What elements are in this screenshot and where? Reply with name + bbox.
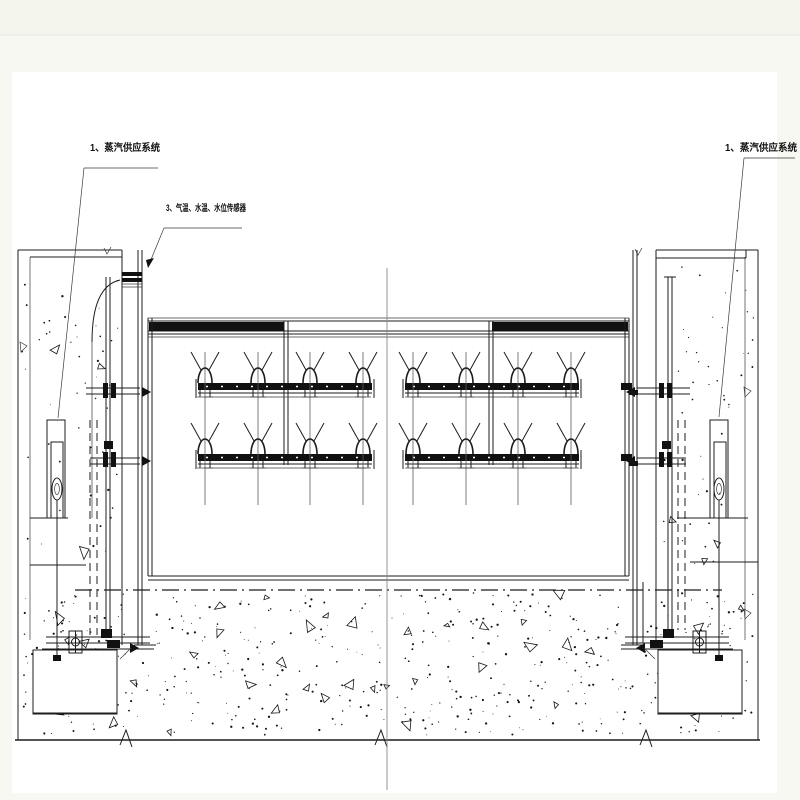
top-beam-right-panel bbox=[492, 322, 628, 331]
left-hoist-pit bbox=[33, 650, 117, 714]
drawing-page: 1、蒸汽供应系统 3、气温、水温、水位传感器 1、蒸汽供应系统 bbox=[0, 0, 800, 800]
label-steam-supply-left: 1、蒸汽供应系统 bbox=[90, 141, 160, 154]
label-sensors: 3、气温、水温、水位传感器 bbox=[166, 202, 247, 213]
right-hoist-pit bbox=[658, 650, 742, 714]
sensor-conduit bbox=[122, 272, 142, 276]
label-steam-supply-right: 1、蒸汽供应系统 bbox=[725, 141, 797, 154]
top-beam-left-panel bbox=[149, 322, 284, 331]
engineering-drawing: 1、蒸汽供应系统 3、气温、水温、水位传感器 1、蒸汽供应系统 bbox=[0, 0, 800, 800]
